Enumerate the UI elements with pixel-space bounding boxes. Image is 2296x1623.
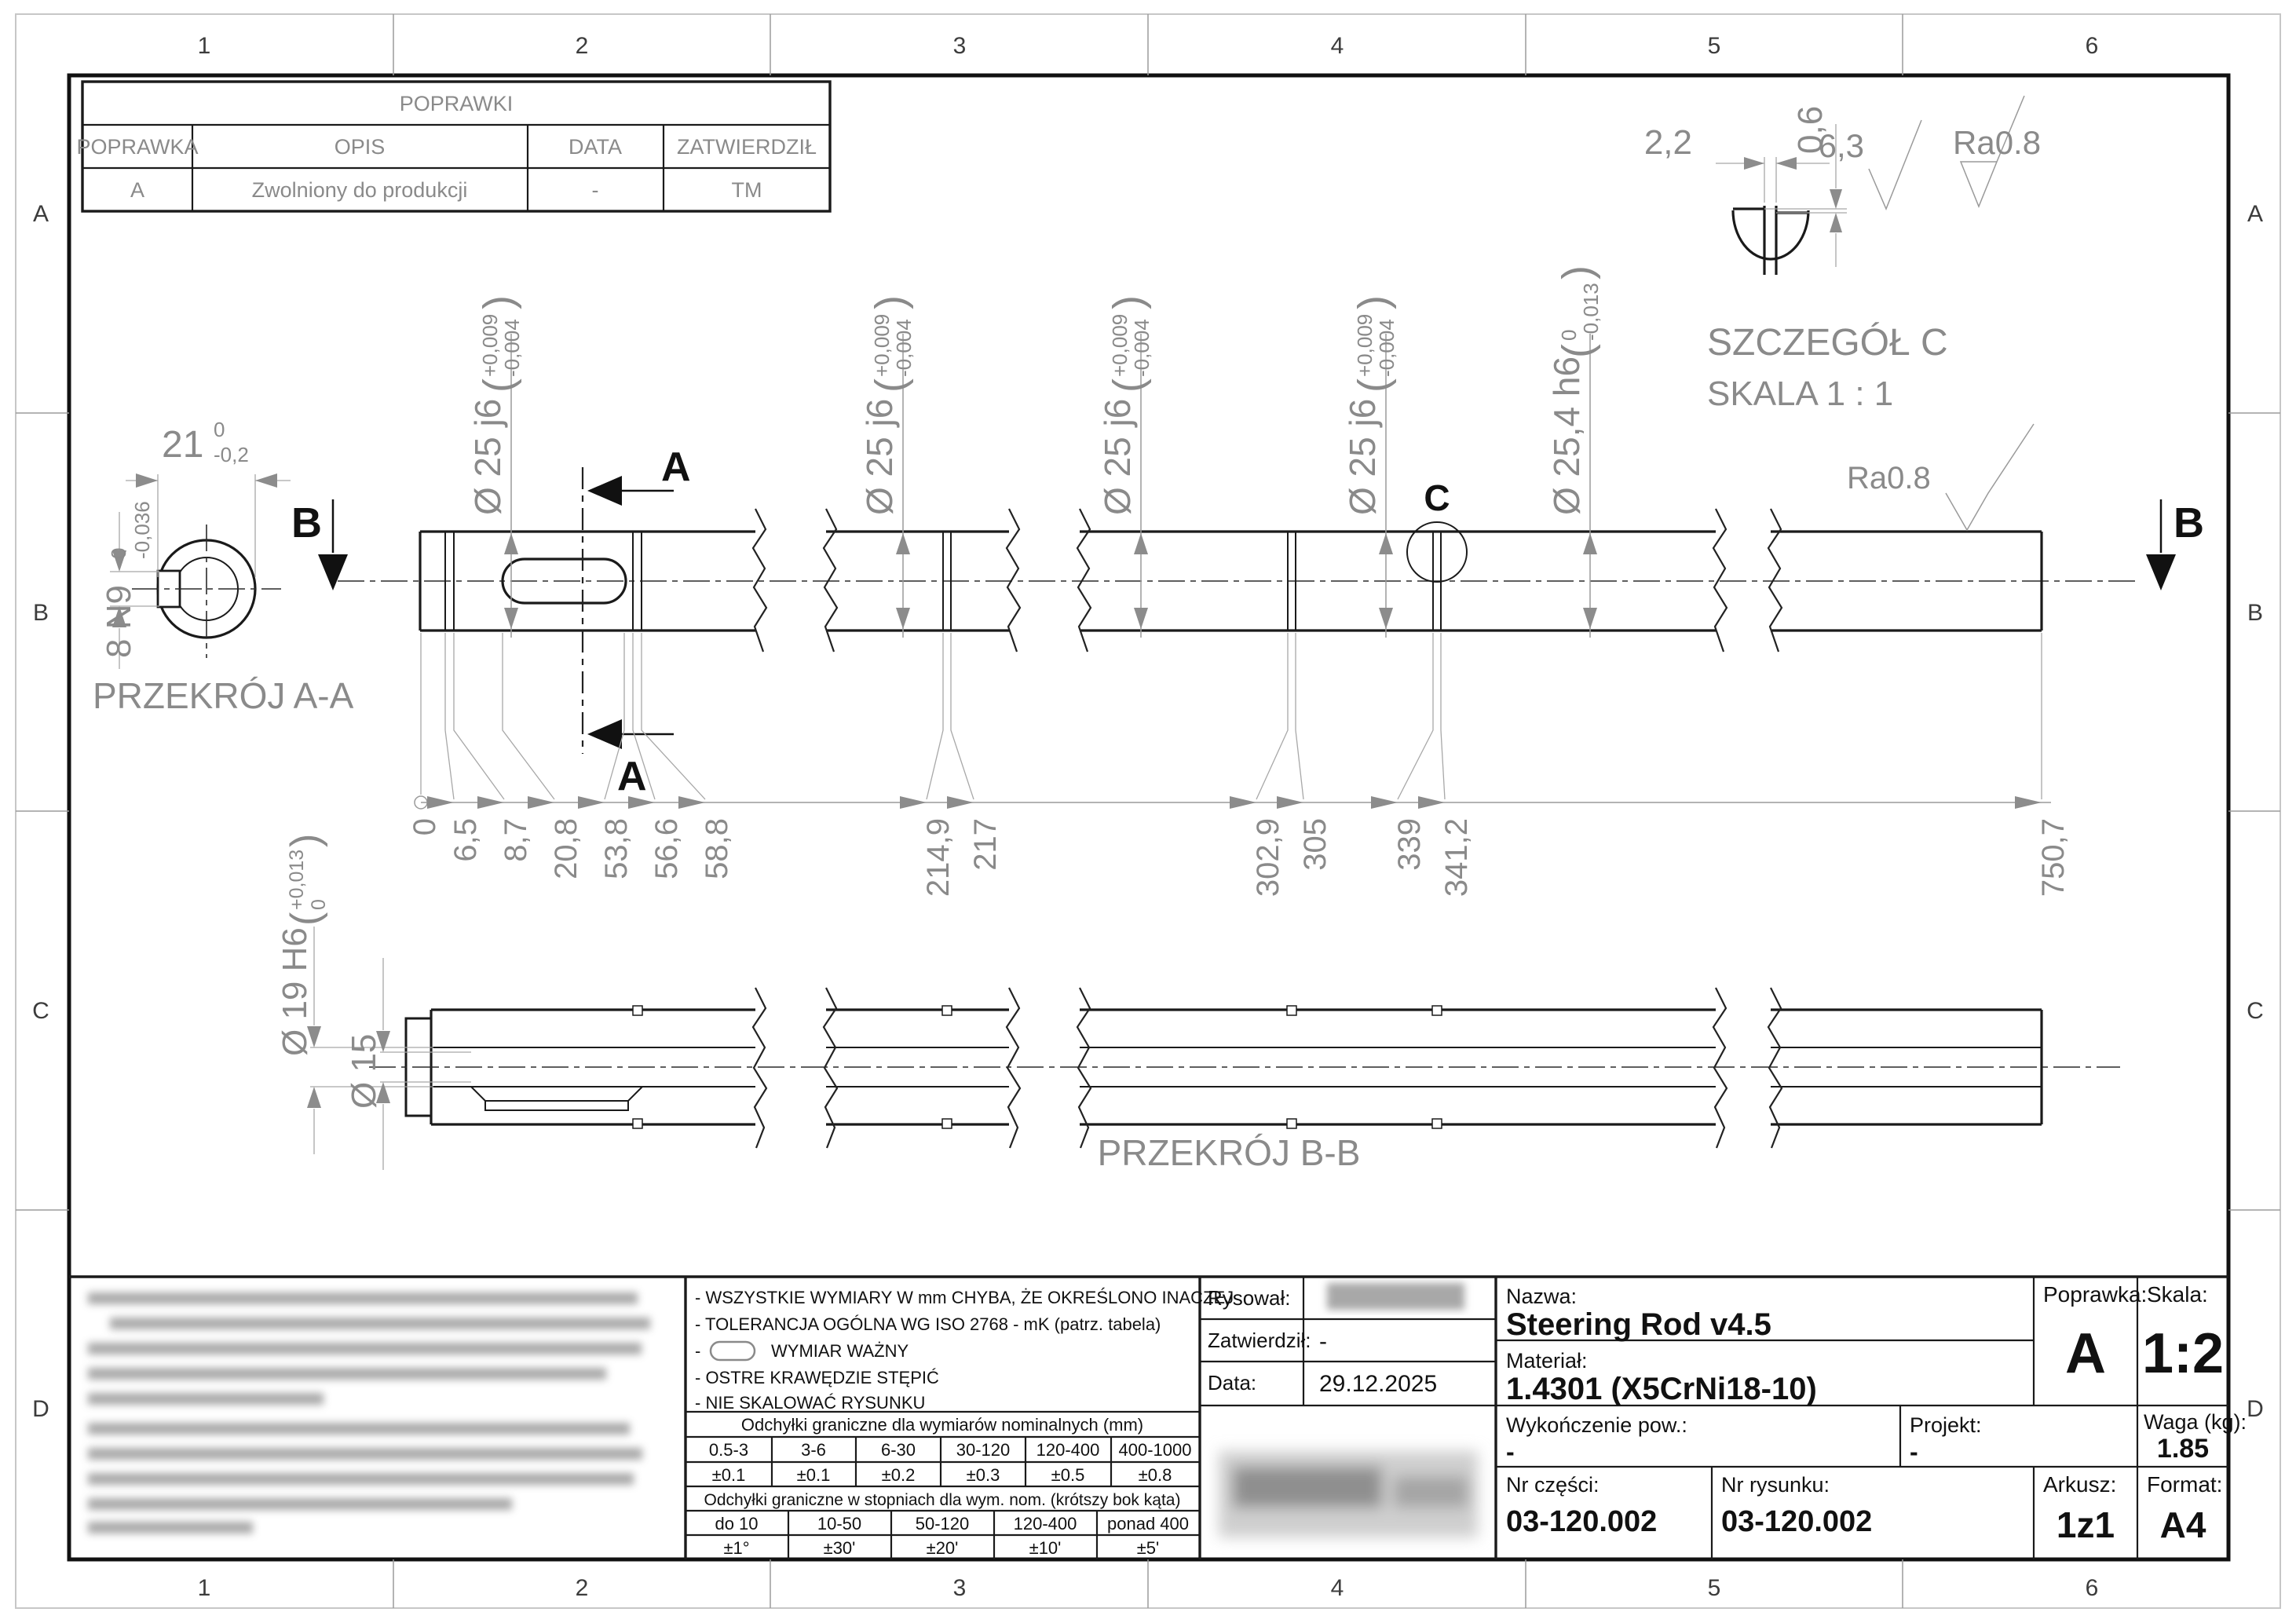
dim-8n9: 8 N9 0 -0,036 (100, 501, 159, 669)
paren-open: ( (867, 378, 914, 393)
zone-row-d: D (32, 1396, 49, 1422)
data-value: 29.12.2025 (1319, 1371, 1437, 1397)
ordinate-value: 339 (1392, 818, 1427, 871)
drawing-canvas: 1 2 3 4 5 6 1 2 3 4 5 6 A B C D A B C D … (0, 0, 2296, 1623)
tol-range-mm: 6-30 (881, 1440, 916, 1460)
detail-c-marker: C (1424, 477, 1450, 518)
tol-range-deg: 120-400 (1014, 1514, 1077, 1533)
poprawka-value: A (2065, 1322, 2106, 1385)
revision-row-date: - (592, 178, 599, 202)
waga-value: 1.85 (2157, 1434, 2209, 1464)
tol-range-deg: do 10 (715, 1514, 758, 1533)
poprawka-label: Poprawka: (2043, 1282, 2147, 1307)
wykonczenie-label: Wykończenie pow.: (1506, 1413, 1687, 1437)
dia-label: Ø 25 j6 (859, 399, 900, 515)
section-bb-title: PRZEKRÓJ B-B (1098, 1132, 1361, 1173)
dim-8n9-tol-bottom: -0,036 (130, 501, 154, 559)
tol-range-mm: 30-120 (956, 1440, 1011, 1460)
skala-value: 1:2 (2142, 1322, 2224, 1385)
ordinate-value: 53,8 (599, 818, 634, 879)
projekt-value: - (1910, 1438, 1918, 1466)
diameter-dim-25j6-2: Ø 25 j6 ( +0,009 -0,004 ) (859, 295, 916, 638)
wykonczenie-value: - (1506, 1438, 1515, 1466)
dia-tol-top: +0,009 (1353, 314, 1377, 377)
dia-tol-top: +0,009 (870, 314, 894, 377)
nr-rysunku-label: Nr rysunku: (1721, 1473, 1830, 1497)
tol-value-deg: ±10' (1029, 1538, 1062, 1558)
dia-label: Ø 25 j6 (1342, 399, 1383, 515)
cutting-plane-a: A A (583, 444, 691, 799)
paren-open: ( (475, 378, 522, 393)
rysowal-label: Rysował: (1208, 1286, 1290, 1310)
detail-c-scale: SKALA 1 : 1 (1707, 375, 1893, 413)
cut-b-label-left: B (291, 499, 322, 546)
dim-21-tol-top: 0 (214, 418, 225, 441)
revision-col-opis: OPIS (335, 135, 386, 159)
revision-title: POPRAWKI (400, 92, 514, 115)
tol-range-mm: 0.5-3 (709, 1440, 748, 1460)
paren-open: ( (283, 912, 328, 926)
tol-value-mm: ±0.5 (1051, 1465, 1085, 1485)
zone-col-2b: 2 (576, 1575, 589, 1601)
revision-row-approved: TM (732, 178, 762, 202)
data-label: Data: (1208, 1371, 1256, 1395)
material-value: 1.4301 (X5CrNi18-10) (1506, 1372, 1817, 1406)
ordinate-value: 750,7 (2036, 818, 2071, 897)
format-label: Format: (2147, 1472, 2222, 1497)
arkusz-value: 1z1 (2057, 1504, 2115, 1545)
ordinate-value: 8,7 (499, 818, 533, 862)
tol-range-deg: 10-50 (817, 1514, 861, 1533)
dim-19-label: Ø 19 H6 (276, 927, 314, 1056)
nazwa-label: Nazwa: (1506, 1285, 1577, 1308)
zone-col-6: 6 (2086, 33, 2099, 59)
tol-header-deg: Odchyłki graniczne w stopniach dla wym. … (704, 1491, 1181, 1509)
zone-col-4: 4 (1331, 33, 1344, 59)
zone-labels: 1 2 3 4 5 6 1 2 3 4 5 6 A B C D A B C D (32, 33, 2264, 1601)
ordinate-value: 341,2 (1439, 818, 1474, 897)
dim-19-tol-top: +0,013 (286, 850, 308, 910)
tol-value-deg: ±20' (927, 1538, 959, 1558)
note-line-3-prefix: - (695, 1341, 700, 1361)
section-aa-title: PRZEKRÓJ A-A (93, 675, 354, 716)
dia-tol-bottom: -0,004 (1375, 319, 1398, 377)
dim-21-tol-bottom: -0,2 (214, 443, 249, 466)
note-line-5: - NIE SKALOWAĆ RYSUNKU (695, 1393, 925, 1413)
tol-range-deg: 50-120 (916, 1514, 970, 1533)
zone-row-b: B (33, 600, 49, 626)
tol-header-mm: Odchyłki graniczne dla wymiarów nominaln… (741, 1415, 1143, 1435)
arkusz-label: Arkusz: (2043, 1472, 2116, 1497)
zone-col-3: 3 (953, 33, 967, 59)
dia-label: Ø 25,4 h6 (1546, 356, 1587, 515)
paren-open: ( (1554, 344, 1601, 358)
revision-col-poprawka: POPRAWKA (76, 135, 198, 159)
dia-tol-bottom: -0,013 (1579, 283, 1603, 341)
dia-tol-top: 0 (1557, 330, 1581, 341)
zone-row-c2: C (2247, 998, 2264, 1024)
skala-label: Skala: (2147, 1282, 2208, 1307)
projekt-label: Projekt: (1910, 1413, 1982, 1437)
important-dimension-symbol (711, 1342, 755, 1360)
note-line-3: WYMIAR WAŻNY (771, 1341, 909, 1361)
paren-close: ) (1105, 295, 1152, 309)
tol-value-deg: ±1° (723, 1538, 749, 1558)
zone-row-a2: A (2247, 201, 2263, 227)
roughness-ra-value: Ra0.8 (1953, 124, 2041, 161)
cut-a-label-top: A (661, 444, 691, 490)
dia-tol-bottom: -0,004 (1130, 319, 1153, 377)
zone-row-a: A (33, 201, 49, 227)
cutting-plane-b: B B (291, 499, 2204, 590)
zone-col-3b: 3 (953, 1575, 967, 1601)
detail-c-slot (1764, 206, 1776, 275)
dia-tol-bottom: -0,004 (500, 319, 524, 377)
dia-tol-top: +0,009 (1108, 314, 1132, 377)
diameter-dim-25j6-4: Ø 25 j6 ( +0,009 -0,004 ) (1342, 295, 1398, 638)
zatwierdzil-label: Zatwierdził: (1208, 1329, 1311, 1352)
zone-row-b2: B (2247, 600, 2263, 626)
detail-c-shape (1733, 209, 1808, 259)
revision-col-data: DATA (569, 135, 622, 159)
revision-row-desc: Zwolniony do produkcji (252, 178, 468, 202)
nr-czesci-value: 03-120.002 (1506, 1505, 1657, 1538)
note-line-4: - OSTRE KRAWĘDZIE STĘPIĆ (695, 1368, 939, 1387)
zone-col-1: 1 (198, 33, 211, 59)
revision-table: POPRAWKI POPRAWKA OPIS DATA ZATWIERDZIŁ … (76, 82, 830, 211)
engineering-drawing-sheet: 1 2 3 4 5 6 1 2 3 4 5 6 A B C D A B C D … (0, 0, 2296, 1623)
revision-row-rev: A (130, 178, 144, 202)
paren-close: ) (283, 834, 328, 847)
ordinate-value: 217 (968, 818, 1003, 871)
tol-value-mm: ±0.2 (882, 1465, 916, 1485)
paren-close: ) (475, 295, 522, 309)
diameter-dim-25j6-3: Ø 25 j6 ( +0,009 -0,004 ) (1097, 295, 1153, 638)
nr-czesci-label: Nr części: (1506, 1473, 1600, 1497)
rysowal-value-blurred (1327, 1283, 1464, 1310)
ordinate-value: 214,9 (921, 818, 956, 897)
zone-row-c: C (32, 998, 49, 1024)
ordinate-dimensions: 0 6,5 8,7 20,8 53,8 56,6 58,8 214,9 217 … (408, 633, 2071, 897)
dim-21-nominal: 21 (162, 424, 203, 466)
zone-col-2: 2 (576, 33, 589, 59)
blurred-notes-paragraph (88, 1292, 650, 1533)
dim-8n9-tol-top: 0 (107, 548, 130, 559)
zone-col-4b: 4 (1331, 1575, 1344, 1601)
section-aa-view: 21 0 -0,2 8 N9 0 -0,036 PRZEKRÓJ A-A (93, 418, 354, 716)
tol-value-deg: ±5' (1137, 1538, 1160, 1558)
general-notes: - WSZYSTKIE WYMIARY W mm CHYBA, ŻE OKREŚ… (695, 1288, 1234, 1413)
paren-close: ) (867, 295, 914, 309)
diameter-dim-254h6: Ø 25,4 h6 ( 0 -0,013 ) (1546, 265, 1603, 638)
roughness-ra-symbol: Ra0.8 (1953, 96, 2041, 207)
tol-range-deg: ponad 400 (1107, 1514, 1189, 1533)
ordinate-value: 0 (408, 818, 442, 835)
paren-open: ( (1350, 378, 1397, 393)
tol-value-mm: ±0.1 (712, 1465, 746, 1485)
tol-value-mm: ±0.8 (1139, 1465, 1172, 1485)
tol-range-mm: 120-400 (1036, 1440, 1100, 1460)
zone-col-5b: 5 (1708, 1575, 1721, 1601)
dia-tol-bottom: -0,004 (892, 319, 916, 377)
detail-c-slot-width: 2,2 (1644, 123, 1692, 162)
dim-8n9-nominal: 8 N9 (100, 585, 138, 658)
surface-ra-label: Ra0.8 (1847, 461, 1931, 495)
detail-c-view: 2,2 0,6 6,3 Ra0.8 SZCZEGÓŁ C SKALA 1 : 1 (1644, 96, 2041, 413)
format-value: A4 (2160, 1504, 2206, 1545)
section-bb-view: Ø 19 H6 ( +0,013 0 ) Ø 15 PRZEKRÓJ B-B (276, 834, 2120, 1173)
dia-label: Ø 25 j6 (467, 399, 508, 515)
revision-col-zatwierdzil: ZATWIERDZIŁ (677, 135, 817, 159)
zone-col-6b: 6 (2086, 1575, 2099, 1601)
material-label: Materiał: (1506, 1349, 1588, 1373)
cut-b-label-right: B (2174, 499, 2204, 546)
company-logo-blurred (1219, 1451, 1478, 1537)
dim-15-label: Ø 15 (345, 1034, 383, 1109)
tol-value-deg: ±30' (824, 1538, 856, 1558)
ordinate-value: 305 (1298, 818, 1333, 871)
nazwa-value: Steering Rod v4.5 (1506, 1307, 1771, 1342)
ordinate-value: 6,5 (448, 818, 483, 862)
dia-label: Ø 25 j6 (1097, 399, 1138, 515)
ordinate-value: 58,8 (700, 818, 734, 879)
zone-row-d2: D (2247, 1396, 2264, 1422)
paren-open: ( (1105, 378, 1152, 393)
detail-c-title: SZCZEGÓŁ C (1707, 321, 1948, 364)
ordinate-labels: 0 6,5 8,7 20,8 53,8 56,6 58,8 214,9 217 … (408, 818, 2071, 897)
tol-value-mm: ±0.1 (797, 1465, 831, 1485)
ordinate-value: 302,9 (1251, 818, 1285, 897)
note-line-2: - TOLERANCJA OGÓLNA WG ISO 2768 - mK (pa… (695, 1314, 1161, 1334)
dia-tol-top: +0,009 (478, 314, 502, 377)
ordinate-value: 56,6 (649, 818, 684, 879)
paren-close: ) (1554, 265, 1601, 280)
zone-col-1b: 1 (198, 1575, 211, 1601)
nr-rysunku-value: 03-120.002 (1721, 1505, 1872, 1538)
zatwierdzil-value: - (1319, 1329, 1327, 1354)
zone-col-5: 5 (1708, 33, 1721, 59)
surface-finish-main: Ra0.8 (1847, 424, 2034, 530)
diameter-dim-25j6-1: Ø 25 j6 ( +0,009 -0,004 ) (467, 295, 524, 638)
dim-19-tol-bottom: 0 (308, 899, 330, 910)
ordinate-value: 20,8 (549, 818, 583, 879)
paren-close: ) (1350, 295, 1397, 309)
tol-range-mm: 3-6 (801, 1440, 826, 1460)
tol-range-mm: 400-1000 (1119, 1440, 1192, 1460)
waga-label: Waga (kg): (2144, 1410, 2247, 1434)
roughness-general-value: 6,3 (1819, 127, 1864, 164)
note-line-1: - WSZYSTKIE WYMIARY W mm CHYBA, ŻE OKREŚ… (695, 1288, 1234, 1307)
tol-value-mm: ±0.3 (967, 1465, 1000, 1485)
